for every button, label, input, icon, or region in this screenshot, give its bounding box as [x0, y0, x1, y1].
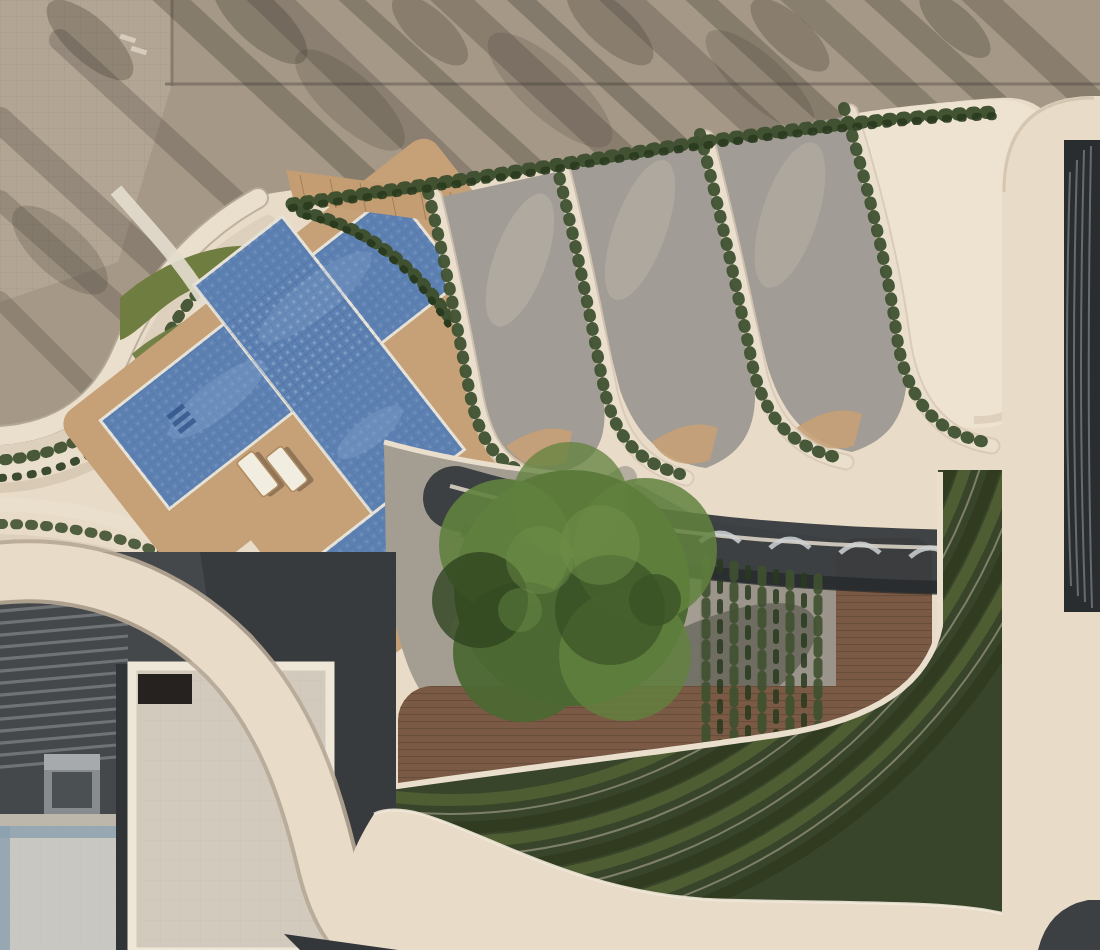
right-parapet — [1002, 96, 1100, 950]
patio-door — [138, 674, 192, 704]
counter-strip — [0, 814, 128, 828]
aerial-render — [0, 0, 1100, 950]
utility-box — [44, 754, 100, 814]
render-canvas — [0, 0, 1100, 950]
lower-floor — [0, 826, 116, 950]
lower-courtyard-building — [0, 552, 396, 950]
